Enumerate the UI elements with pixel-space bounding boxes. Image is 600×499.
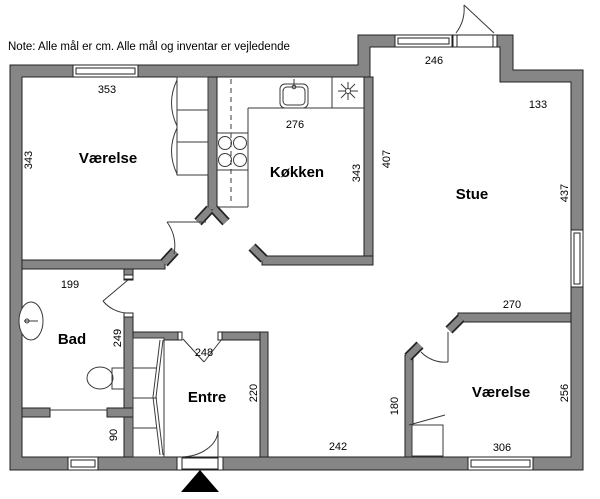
room-label-bad: Bad [58, 331, 86, 348]
dim-vaerelse-se-right: 256 [559, 384, 571, 402]
dim-vaerelse-nw-top: 353 [98, 84, 116, 96]
dim-koekken-right: 343 [351, 164, 363, 182]
dim-stue-bottom: 270 [503, 299, 521, 311]
window-stue-right [571, 230, 583, 287]
wall-utility-right [107, 408, 133, 417]
dim-vaerelse-nw-left: 343 [23, 151, 35, 169]
jamb-bad-top [124, 275, 133, 279]
wardrobe-icon-nw [172, 77, 209, 175]
jamb-entre-left [178, 332, 182, 340]
toilet-icon [87, 367, 124, 389]
door-entrance [181, 431, 218, 457]
dim-stue-right: 437 [559, 184, 571, 202]
wardrobe-icon-entre [133, 338, 164, 457]
dim-koekken-top: 276 [286, 119, 304, 131]
wall-bad-right [124, 313, 133, 457]
dim-bad-top: 199 [61, 279, 79, 291]
light-asterisk-icon [338, 82, 358, 100]
window-vaerelse-nw [73, 65, 138, 77]
kitchen-sink-icon [280, 79, 308, 108]
room-label-vaerelse-se: Værelse [472, 384, 530, 401]
wall-utility-left [22, 408, 50, 417]
wall-kitchen-right [364, 77, 373, 265]
stove-icon [219, 137, 247, 167]
entrance-door-gap [177, 457, 223, 470]
wall-vaerelse-nw-bottom [22, 260, 165, 269]
wardrobe-icon-se [409, 415, 445, 456]
hand-basin-icon [19, 302, 43, 340]
room-label-stue: Stue [456, 186, 489, 203]
jamb-bad-bottom [124, 313, 133, 317]
dim-stue-top: 246 [425, 55, 443, 67]
door-gap-stue-top [453, 35, 497, 47]
wall-vaerelse-se-top [458, 313, 571, 322]
door-bad [103, 280, 128, 313]
dim-stue-left: 407 [381, 150, 393, 168]
window-vaerelse-se [468, 457, 533, 470]
room-label-vaerelse-nw: Værelse [79, 150, 137, 167]
jamb-entre-right [218, 332, 222, 340]
dim-hall-bottom: 242 [329, 441, 347, 453]
window-stue-top [395, 35, 452, 47]
wall-kitchen-left [208, 77, 217, 210]
note-text: Note: Alle mål er cm. Alle mål og invent… [8, 41, 290, 53]
dim-bad-right: 249 [112, 329, 124, 347]
floorplan-canvas: Note: Alle mål er cm. Alle mål og invent… [0, 0, 600, 499]
wall-kitchen-bottom [262, 256, 373, 265]
dim-utility-right: 90 [108, 429, 120, 441]
wall-stubs [164, 209, 461, 357]
dim-entre-right: 220 [248, 384, 260, 402]
window-utility [68, 457, 98, 470]
dim-vaerelse-se-left: 180 [389, 397, 401, 415]
room-label-entre: Entre [188, 389, 226, 406]
dim-entre-top: 248 [195, 347, 213, 359]
door-stue-exterior [456, 5, 494, 33]
entrance-arrow-icon [181, 470, 219, 492]
dim-stue-notch: 133 [529, 99, 547, 111]
door-vaerelse-se [421, 332, 448, 362]
wall-entre-right [260, 332, 268, 457]
dim-vaerelse-se-bottom: 306 [493, 442, 511, 454]
room-label-koekken: Køkken [270, 164, 324, 181]
